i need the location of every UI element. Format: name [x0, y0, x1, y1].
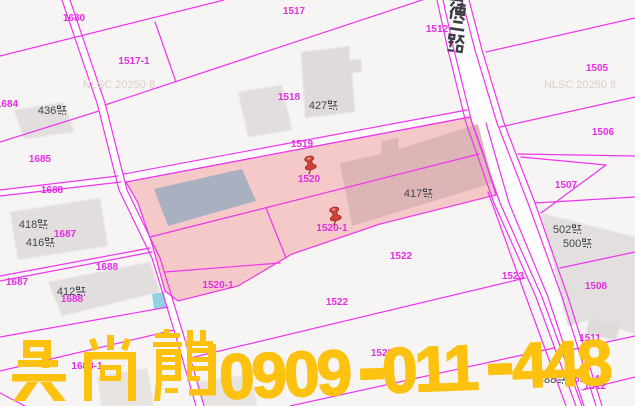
svg-text:1508: 1508 — [585, 281, 608, 292]
svg-text:1522: 1522 — [390, 251, 413, 262]
svg-text:1506: 1506 — [592, 127, 615, 138]
svg-text:436: 436 — [38, 105, 56, 117]
svg-text:1520-1: 1520-1 — [202, 280, 234, 291]
svg-text:1512: 1512 — [426, 24, 449, 35]
svg-text:1505: 1505 — [586, 63, 609, 74]
svg-text:1684: 1684 — [0, 99, 19, 110]
svg-text:427: 427 — [309, 100, 327, 112]
svg-text:NLSC 20250 8: NLSC 20250 8 — [83, 79, 155, 91]
svg-text:500: 500 — [563, 238, 581, 250]
svg-text:1687: 1687 — [54, 229, 77, 240]
svg-text:412: 412 — [57, 286, 75, 298]
svg-text:1507: 1507 — [555, 180, 578, 191]
svg-text:0909: 0909 — [218, 336, 352, 406]
svg-text:1688: 1688 — [96, 262, 119, 273]
svg-text:1517-1: 1517-1 — [118, 56, 150, 67]
svg-text:417: 417 — [404, 188, 422, 200]
svg-text:1518: 1518 — [278, 92, 301, 103]
svg-text:1520: 1520 — [298, 174, 321, 185]
svg-text:1522: 1522 — [326, 297, 349, 308]
svg-text:NLSC 20250 8: NLSC 20250 8 — [544, 79, 616, 91]
svg-text:1517: 1517 — [283, 6, 306, 17]
svg-text:1520-1: 1520-1 — [316, 223, 348, 234]
svg-text:418: 418 — [19, 219, 37, 231]
svg-text:1687: 1687 — [6, 277, 29, 288]
svg-text:1688: 1688 — [41, 185, 64, 196]
svg-text:448: 448 — [511, 326, 613, 402]
svg-text:502: 502 — [553, 224, 571, 236]
svg-text:1680: 1680 — [63, 13, 86, 24]
svg-text:011: 011 — [381, 331, 479, 406]
svg-text:1523: 1523 — [502, 271, 525, 282]
svg-text:1519: 1519 — [291, 139, 314, 150]
svg-text:416: 416 — [26, 237, 44, 249]
svg-text:1685: 1685 — [29, 154, 52, 165]
